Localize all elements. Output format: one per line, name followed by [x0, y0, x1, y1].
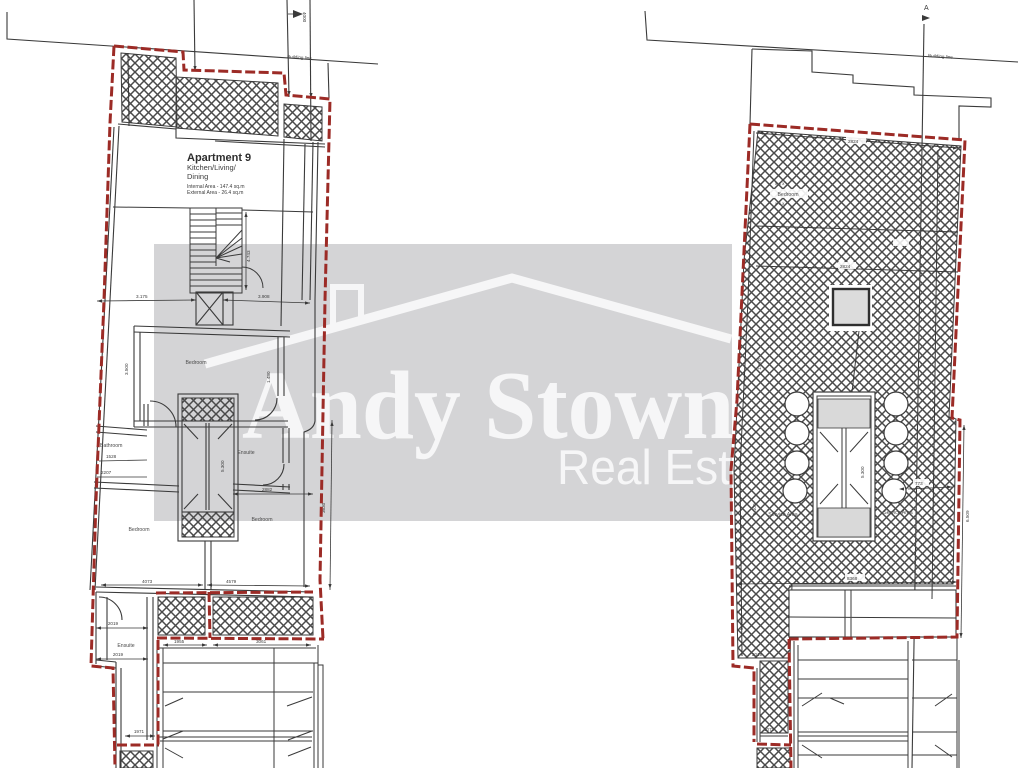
- svg-text:1955: 1955: [174, 639, 185, 644]
- svg-text:5.100: 5.100: [739, 618, 744, 630]
- svg-text:5.300: 5.300: [220, 460, 225, 472]
- svg-text:8368: 8368: [847, 576, 858, 581]
- svg-text:1528: 1528: [106, 454, 117, 459]
- svg-text:5.300: 5.300: [860, 466, 865, 478]
- svg-text:6.509: 6.509: [965, 510, 970, 522]
- svg-text:4073: 4073: [142, 579, 153, 584]
- svg-text:x x x: x x x: [775, 181, 785, 186]
- svg-text:Building line: Building line: [928, 53, 954, 60]
- svg-text:2207: 2207: [101, 470, 112, 475]
- svg-text:Dining: Dining: [187, 172, 208, 181]
- svg-text:Bedroom: Bedroom: [128, 527, 149, 533]
- svg-text:x x x: x x x: [775, 201, 785, 206]
- svg-text:1071: 1071: [764, 727, 775, 732]
- svg-text:3.908: 3.908: [258, 294, 270, 299]
- svg-text:Ensuite: Ensuite: [117, 643, 134, 649]
- svg-text:2019: 2019: [113, 652, 124, 657]
- svg-text:Bedroom: Bedroom: [251, 517, 272, 523]
- svg-text:4000: 4000: [302, 12, 307, 23]
- svg-text:2824: 2824: [848, 139, 859, 144]
- svg-text:Service Area: Service Area: [768, 512, 798, 518]
- svg-text:3.175: 3.175: [136, 294, 148, 299]
- svg-text:External Area - 26.4 sq.m: External Area - 26.4 sq.m: [187, 190, 243, 196]
- svg-text:4.743: 4.743: [246, 250, 251, 262]
- svg-text:Bedroom: Bedroom: [777, 192, 798, 198]
- svg-text:5.100: 5.100: [752, 503, 757, 515]
- svg-text:1.170: 1.170: [757, 358, 762, 370]
- svg-text:2882: 2882: [262, 487, 273, 492]
- svg-text:Service Area: Service Area: [883, 510, 913, 516]
- svg-text:Bedroom: Bedroom: [185, 360, 206, 366]
- svg-text:Ensuite: Ensuite: [237, 450, 254, 456]
- svg-text:Bathroom: Bathroom: [100, 443, 123, 449]
- svg-text:2019: 2019: [752, 652, 763, 657]
- svg-text:1.480: 1.480: [266, 371, 271, 383]
- svg-text:3.500: 3.500: [124, 363, 129, 375]
- svg-text:Building line: Building line: [287, 54, 313, 61]
- svg-text:Kitchen/Living/: Kitchen/Living/: [187, 163, 237, 172]
- svg-text:1971: 1971: [134, 729, 145, 734]
- svg-text:2019: 2019: [108, 621, 119, 626]
- svg-text:773: 773: [915, 481, 923, 486]
- svg-text:4579: 4579: [226, 579, 237, 584]
- svg-text:A: A: [924, 5, 929, 12]
- svg-text:2824: 2824: [840, 264, 851, 269]
